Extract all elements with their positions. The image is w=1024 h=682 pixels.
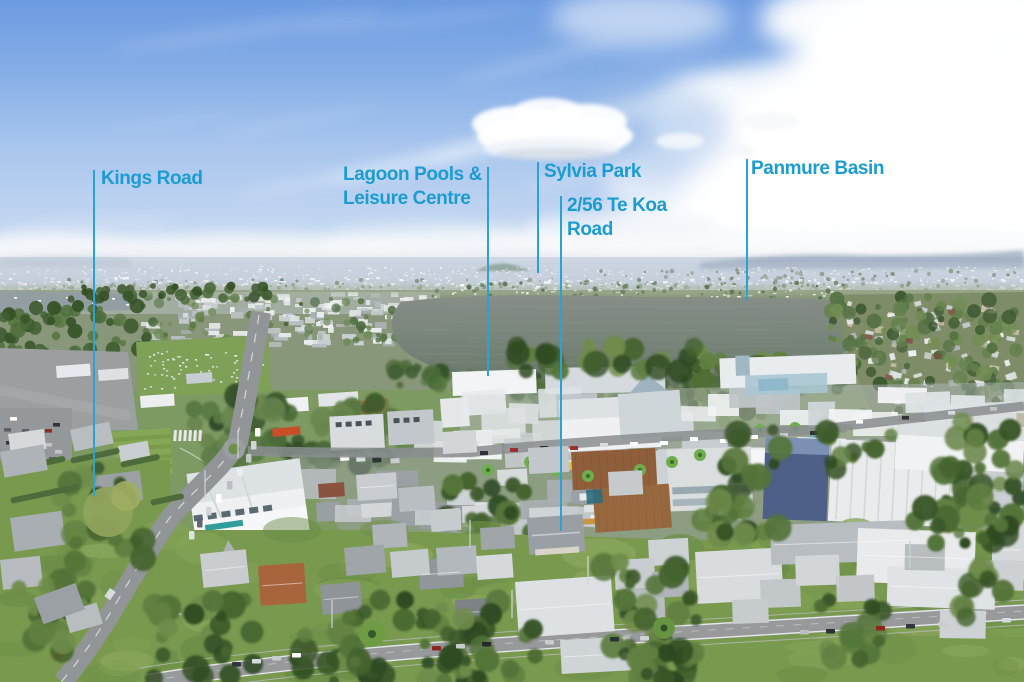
svg-text:Kings Road: Kings Road	[101, 168, 203, 189]
svg-text:Road: Road	[567, 219, 613, 240]
svg-text:2/56 Te Koa: 2/56 Te Koa	[567, 195, 668, 216]
svg-text:Leisure Centre: Leisure Centre	[343, 188, 470, 209]
svg-text:Panmure Basin: Panmure Basin	[751, 158, 884, 179]
svg-text:Sylvia Park: Sylvia Park	[544, 161, 642, 182]
svg-text:Lagoon Pools &: Lagoon Pools &	[343, 164, 483, 185]
